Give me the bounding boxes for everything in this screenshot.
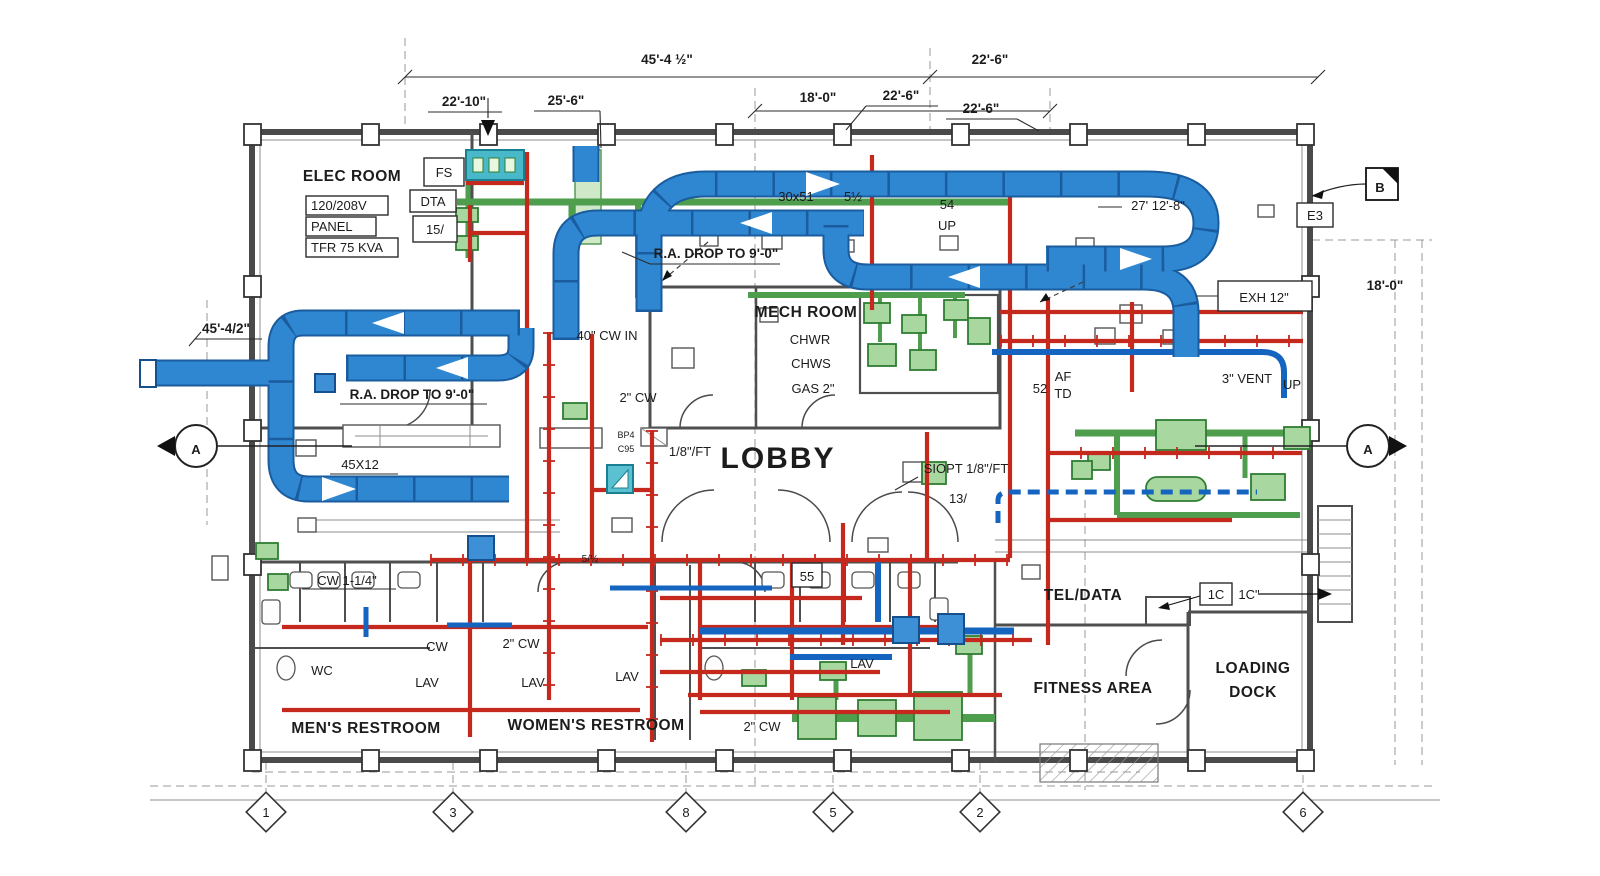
label-up-1: UP bbox=[938, 218, 956, 233]
section-a-left-label: A bbox=[191, 442, 201, 457]
label-ra-drop-left: R.A. DROP TO 9'-0" bbox=[350, 387, 475, 402]
dim-22-6-top: 22'-6" bbox=[972, 52, 1009, 67]
dim-22-6-b: 22'-6" bbox=[883, 88, 920, 103]
label-tfr: TFR 75 KVA bbox=[311, 240, 383, 255]
dim-27-12-8: 27' 12'-8" bbox=[1131, 198, 1185, 213]
grid-bubble-8: 8 bbox=[682, 805, 689, 820]
label-elec-room: ELEC ROOM bbox=[303, 168, 401, 185]
label-tel-data: TEL/DATA bbox=[1044, 587, 1122, 604]
label-dock: DOCK bbox=[1229, 684, 1277, 701]
label-loading: LOADING bbox=[1216, 660, 1291, 677]
label-3-vent: 3" VENT bbox=[1222, 371, 1272, 386]
grid-bubbles: 1 3 8 5 2 6 bbox=[246, 792, 1323, 832]
label-lav-3: LAV bbox=[615, 669, 639, 684]
label-mech-room: MECH ROOM bbox=[755, 304, 858, 321]
dim-22-6-c: 22'-6" bbox=[963, 101, 1000, 116]
label-1c-inch: 1C" bbox=[1238, 587, 1260, 602]
label-gas-2: GAS 2" bbox=[792, 381, 835, 396]
panel-schedule: 120/208V PANEL TFR 75 KVA bbox=[306, 196, 398, 257]
label-womens-restroom: WOMEN'S RESTROOM bbox=[507, 717, 684, 734]
tag-55: 55 bbox=[800, 569, 814, 584]
vav-box bbox=[468, 536, 494, 560]
label-lobby: LOBBY bbox=[721, 442, 836, 475]
label-120-208v: 120/208V bbox=[311, 198, 367, 213]
blueprint-screenshot: A A B 1 3 8 5 2 6 45'-4 ½" 22'-6" 18'-0"… bbox=[0, 0, 1600, 876]
label-chwr: CHWR bbox=[790, 332, 830, 347]
label-mens-restroom: MEN'S RESTROOM bbox=[291, 720, 440, 737]
grid-bubble-3: 3 bbox=[449, 805, 456, 820]
label-chws: CHWS bbox=[791, 356, 831, 371]
tag-1c: 1C bbox=[1208, 587, 1225, 602]
label-bp4: BP4 bbox=[617, 430, 634, 440]
grid-bubble-5: 5 bbox=[829, 805, 836, 820]
floor-plan-canvas: A A B 1 3 8 5 2 6 45'-4 ½" 22'-6" 18'-0"… bbox=[0, 0, 1600, 876]
dim-25-6: 25'-6" bbox=[548, 93, 585, 108]
vav-box bbox=[315, 374, 335, 392]
label-td: TD bbox=[1054, 386, 1071, 401]
label-2cw-a: 2" CW bbox=[619, 390, 657, 405]
tag-fs: FS bbox=[436, 165, 453, 180]
label-5half: 5½ bbox=[844, 189, 862, 204]
tag-15: 15/ bbox=[426, 222, 444, 237]
label-lav-4: LAV bbox=[850, 656, 874, 671]
tag-e3: E3 bbox=[1307, 208, 1323, 223]
label-lav-2: LAV bbox=[521, 675, 545, 690]
label-5-half-b: 5/½ bbox=[582, 554, 599, 565]
label-up-2: UP bbox=[1283, 377, 1301, 392]
label-wc: WC bbox=[311, 663, 333, 678]
label-2cw-c: 2" CW bbox=[743, 719, 781, 734]
label-af: AF bbox=[1055, 369, 1072, 384]
label-2cw-b: 2" CW bbox=[502, 636, 540, 651]
vav-box bbox=[938, 614, 964, 644]
dim-45-4: 45'-4 ½" bbox=[641, 52, 693, 67]
label-52: 52 bbox=[1033, 381, 1047, 396]
section-a-right-label: A bbox=[1363, 442, 1373, 457]
label-cw-114: CW 1-1/4" bbox=[317, 573, 377, 588]
label-cw: CW bbox=[426, 639, 448, 654]
intake-louver bbox=[140, 360, 156, 387]
stair bbox=[1318, 506, 1352, 622]
dim-22-10: 22'-10" bbox=[442, 94, 486, 109]
dim-18-0-right: 18'-0" bbox=[1367, 278, 1404, 293]
label-c95: C95 bbox=[618, 444, 635, 454]
label-54: 54 bbox=[940, 197, 954, 212]
dim-45-4-left: 45'-4/2" bbox=[202, 321, 250, 336]
label-slope-1: 1/8"/FT bbox=[669, 444, 711, 459]
label-duct-size: 30x51 bbox=[778, 189, 813, 204]
label-fitness-area: FITNESS AREA bbox=[1033, 680, 1152, 697]
label-13: 13/ bbox=[949, 491, 967, 506]
label-ra-drop-top: R.A. DROP TO 9'-0" bbox=[654, 246, 779, 261]
dim-18-0: 18'-0" bbox=[800, 90, 837, 105]
tag-dta: DTA bbox=[420, 194, 445, 209]
grid-bubble-6: 6 bbox=[1299, 805, 1306, 820]
section-b-label: B bbox=[1375, 180, 1384, 195]
vav-box bbox=[893, 617, 919, 643]
grid-bubble-2: 2 bbox=[976, 805, 983, 820]
label-panel: PANEL bbox=[311, 219, 353, 234]
label-lav-1: LAV bbox=[415, 675, 439, 690]
section-marker-b: B bbox=[1312, 168, 1398, 200]
label-cw-in: 40" CW IN bbox=[577, 328, 638, 343]
grid-bubble-1: 1 bbox=[262, 805, 269, 820]
loading-ramp-hatch bbox=[1040, 744, 1158, 782]
label-45x12: 45X12 bbox=[341, 457, 379, 472]
label-slope-2: SIOPT 1/8"/FT bbox=[924, 461, 1009, 476]
tag-exh: EXH 12" bbox=[1239, 290, 1289, 305]
